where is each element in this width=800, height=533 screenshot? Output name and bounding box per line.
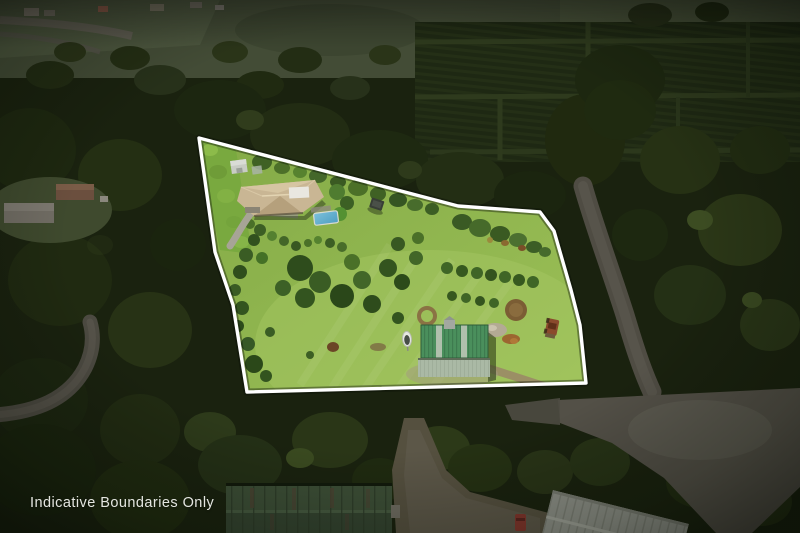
aerial-photo <box>0 0 800 533</box>
real-estate-aerial-photo: Indicative Boundaries Only <box>0 0 800 533</box>
top-shade <box>0 0 800 48</box>
vignette <box>0 0 800 533</box>
watermark-text: Indicative Boundaries Only <box>30 495 214 511</box>
